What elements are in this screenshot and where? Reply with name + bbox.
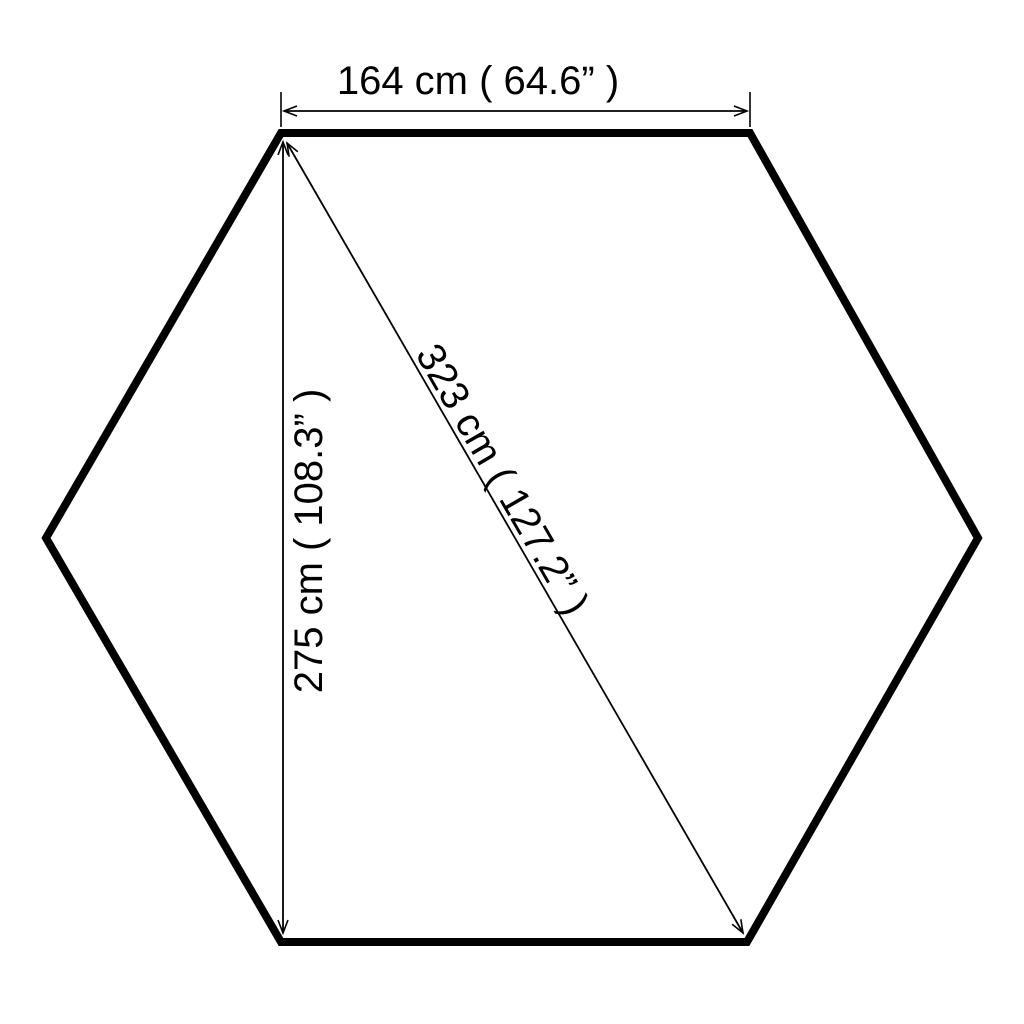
top-width-label: 164 cm ( 64.6” ) <box>337 59 619 103</box>
side-height-label: 275 cm ( 108.3” ) <box>287 389 331 694</box>
diagram-canvas: 164 cm ( 64.6” ) 275 cm ( 108.3” ) 323 c… <box>0 0 1024 1024</box>
hexagon-dimension-diagram: 164 cm ( 64.6” ) 275 cm ( 108.3” ) 323 c… <box>0 0 1024 1024</box>
top-width-dimension: 164 cm ( 64.6” ) <box>281 59 750 127</box>
